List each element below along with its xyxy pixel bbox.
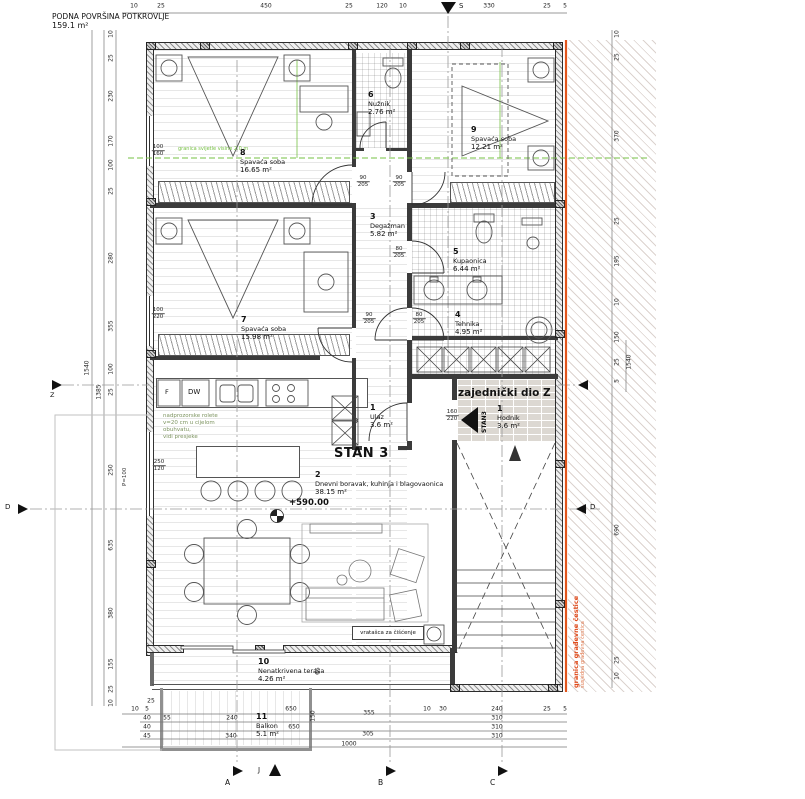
opening-width: 90 <box>366 312 373 318</box>
opening-height: 205 <box>393 182 406 189</box>
opening-size-label: 100160 <box>152 144 165 158</box>
opening-height: 205 <box>357 182 370 189</box>
opening-width: 90 <box>396 175 403 181</box>
opening-width: 100 <box>153 144 164 150</box>
opening-height: 220 <box>152 314 165 321</box>
opening-width: 100 <box>153 307 164 313</box>
opening-size-label: 80205 <box>393 246 406 260</box>
opening-width: 80 <box>396 246 403 252</box>
opening-size-label: 100220 <box>152 307 165 321</box>
opening-height: 220 <box>446 416 459 423</box>
opening-height: 205 <box>363 319 376 326</box>
opening-height: 120 <box>153 466 166 473</box>
opening-height: 205 <box>413 319 426 326</box>
opening-size-label: 90205 <box>363 312 376 326</box>
floor-plan-canvas: PODNA POVRŠINA POTKROVLJE 159.1 m² STAN … <box>0 0 805 799</box>
opening-height: 205 <box>393 253 406 260</box>
opening-width: 80 <box>416 312 423 318</box>
door-size-labels-layer: 9020590205802059020580205160220100160100… <box>0 0 805 799</box>
opening-width: 160 <box>447 409 458 415</box>
opening-size-label: 160220 <box>446 409 459 423</box>
opening-height: 160 <box>152 151 165 158</box>
opening-width: 90 <box>360 175 367 181</box>
opening-width: 250 <box>154 459 165 465</box>
opening-size-label: 250120 <box>153 459 166 473</box>
opening-size-label: 90205 <box>357 175 370 189</box>
opening-size-label: 80205 <box>413 312 426 326</box>
opening-size-label: 90205 <box>393 175 406 189</box>
